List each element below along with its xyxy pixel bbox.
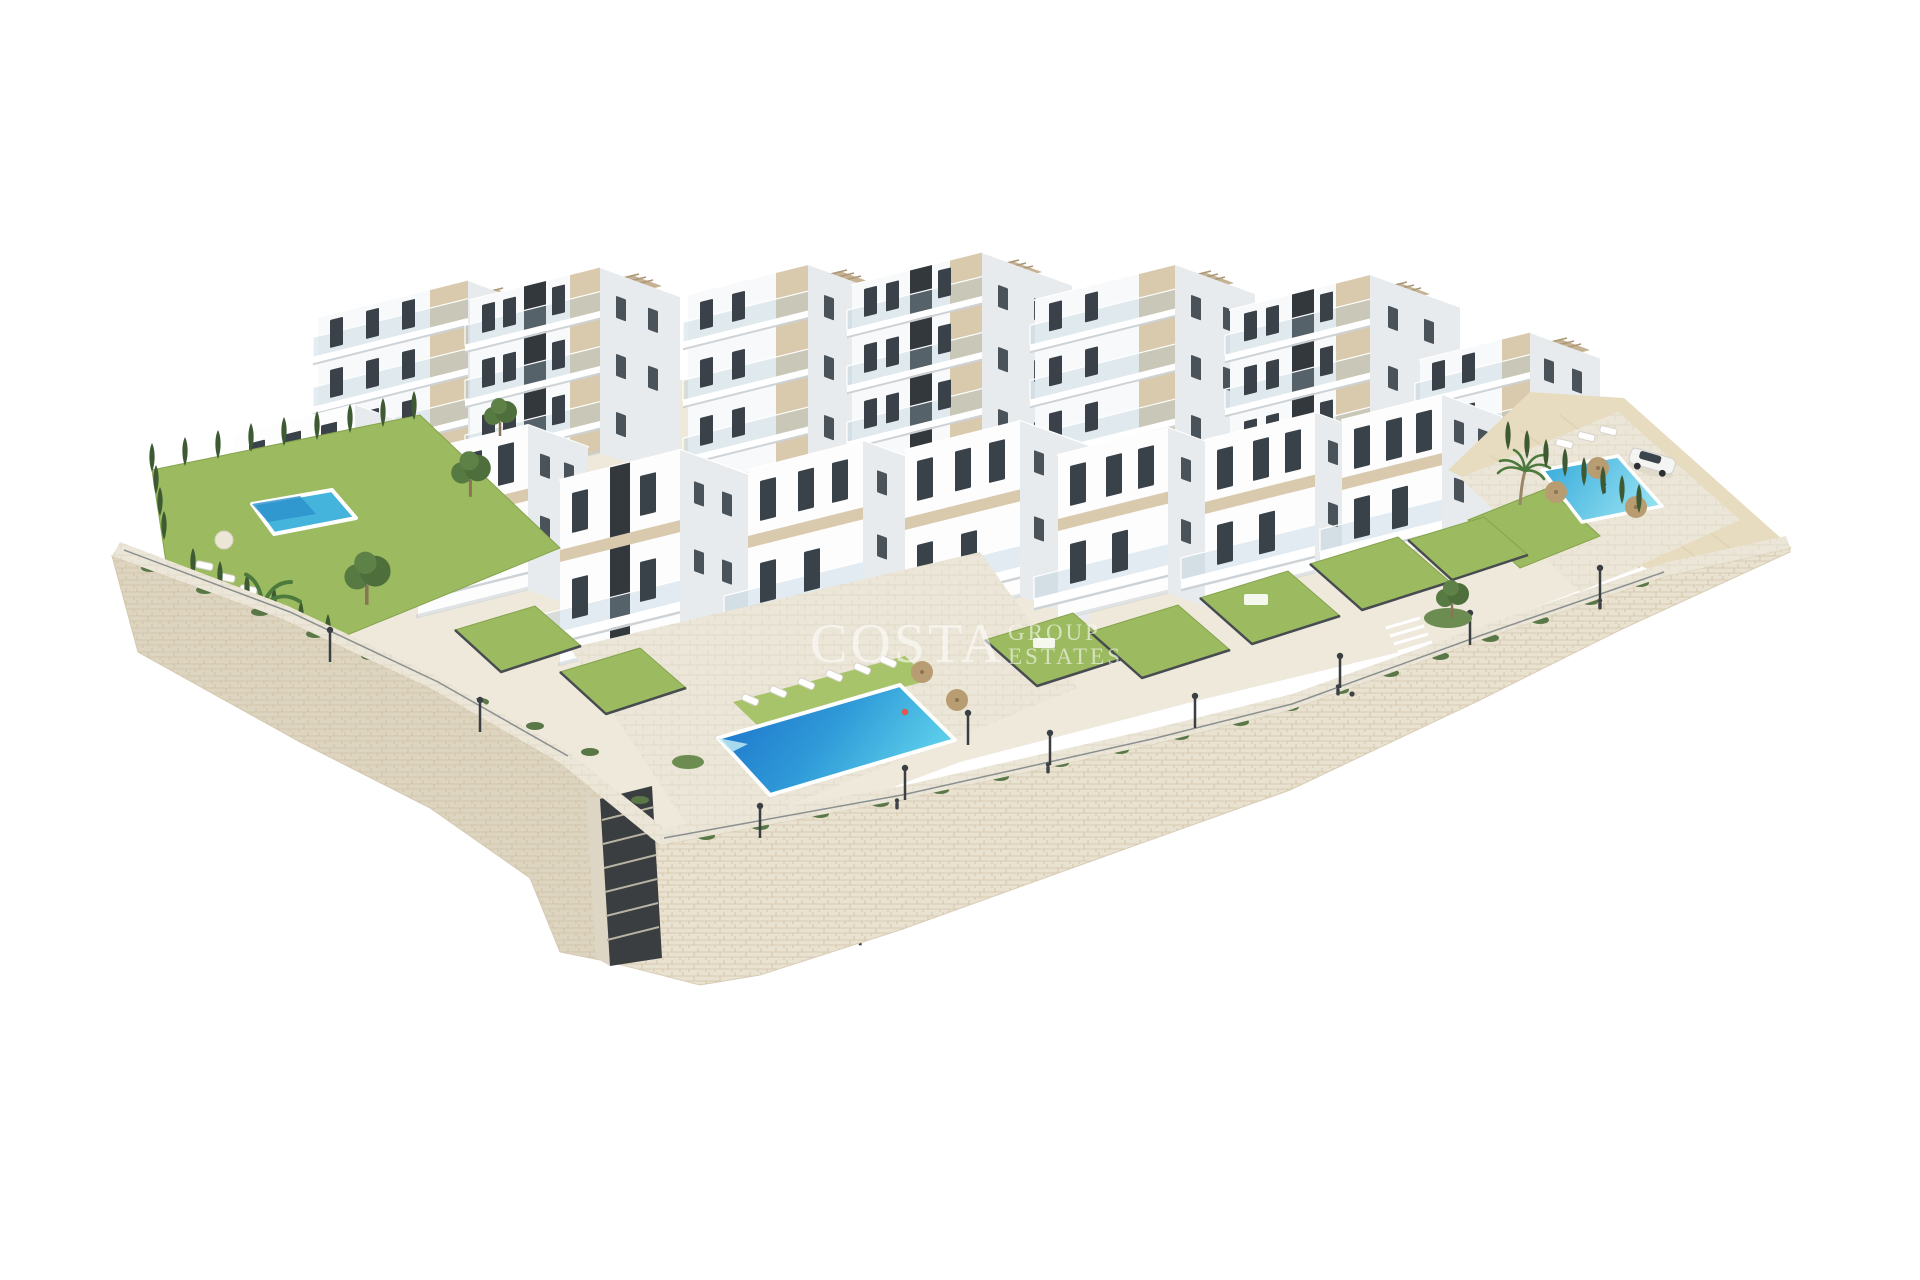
shrub-bed <box>672 755 704 769</box>
watermark-group: GROUP <box>1008 620 1101 645</box>
pedestrian <box>1046 762 1050 773</box>
watermark-costa: COSTA <box>810 613 1004 675</box>
planting-bed <box>1424 608 1472 628</box>
watermark: COSTA GROUP ESTATES <box>810 613 1123 675</box>
site-render: COSTA GROUP ESTATES <box>0 0 1920 1280</box>
villa-block-6 <box>1034 422 1233 627</box>
pedestrian <box>895 798 899 809</box>
garden-parasol <box>215 531 233 549</box>
parasol <box>1545 481 1567 503</box>
parasol <box>946 689 968 711</box>
parasol <box>1625 496 1647 518</box>
parasol <box>1587 457 1609 479</box>
pedestrian <box>1598 598 1602 609</box>
dog <box>1349 691 1354 696</box>
render-canvas: COSTA GROUP ESTATES <box>0 0 1920 1280</box>
swimmer <box>902 709 908 715</box>
watermark-estates: ESTATES <box>1008 644 1123 669</box>
pedestrian <box>1336 684 1340 695</box>
